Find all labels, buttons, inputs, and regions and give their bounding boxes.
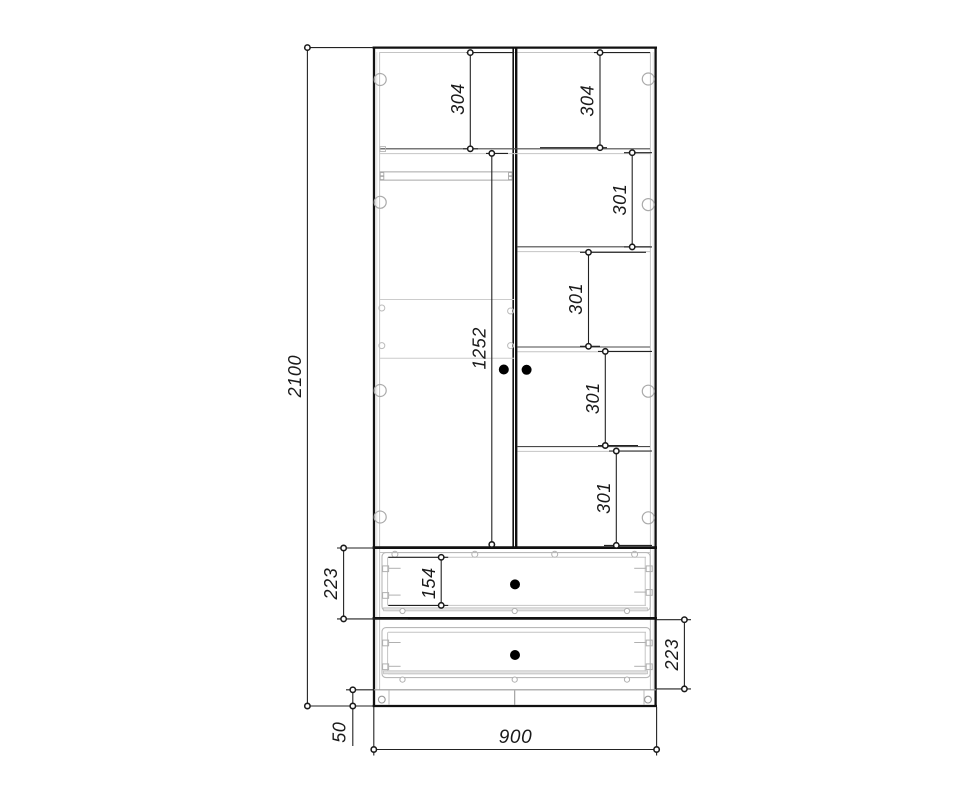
svg-text:301: 301 (583, 382, 603, 414)
svg-text:154: 154 (419, 567, 439, 599)
svg-text:2100: 2100 (285, 355, 305, 398)
svg-text:50: 50 (330, 722, 350, 743)
svg-text:301: 301 (594, 482, 614, 514)
svg-text:223: 223 (321, 568, 341, 601)
svg-text:301: 301 (566, 283, 586, 315)
svg-text:1252: 1252 (469, 327, 489, 369)
svg-text:304: 304 (578, 85, 598, 117)
svg-text:900: 900 (499, 727, 533, 748)
svg-text:223: 223 (662, 639, 682, 672)
svg-text:304: 304 (448, 83, 468, 115)
svg-text:301: 301 (610, 184, 630, 216)
